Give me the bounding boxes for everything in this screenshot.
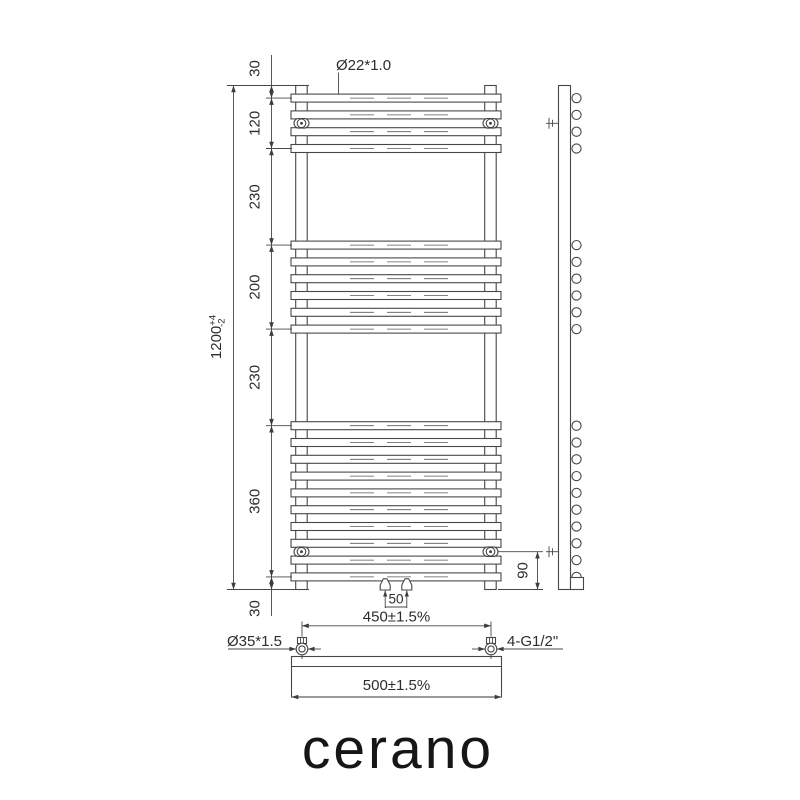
bracket-bolt-center (300, 122, 303, 125)
side-bar-end (572, 539, 581, 548)
towel-bars (291, 94, 501, 581)
side-bar-end (572, 241, 581, 250)
arrowhead (269, 419, 274, 426)
side-bar-end (572, 472, 581, 481)
side-bar-end (572, 438, 581, 447)
arrowhead (231, 86, 236, 93)
arrowhead (289, 647, 296, 652)
side-bar-end (572, 308, 581, 317)
arrowhead (269, 238, 274, 245)
side-bar-end (572, 488, 581, 497)
arrowhead (269, 322, 274, 329)
fitting-cap (298, 638, 307, 644)
chain-dimension-label: 120 (247, 111, 264, 136)
arrowhead (269, 245, 274, 252)
side-riser-tube (559, 86, 571, 590)
arrowhead (269, 86, 274, 93)
arrowhead (535, 583, 540, 590)
bracket-bolt-center (489, 122, 492, 125)
front-view (291, 86, 501, 591)
arrowhead (269, 577, 274, 584)
pipe-fittings (296, 638, 497, 660)
arrowhead (478, 647, 485, 652)
chain-dimension-label: 30 (247, 60, 264, 77)
tube-callout: Ø22*1.0 (336, 57, 391, 95)
tube-diameter-label: Ø22*1.0 (336, 57, 391, 74)
axis-spacing-label: 450±1.5% (363, 609, 430, 626)
side-bar-end (572, 257, 581, 266)
valve-spacing-label: 50 (388, 592, 403, 607)
thread-label: 4-G1/2" (507, 633, 558, 650)
side-bar-end (572, 556, 581, 565)
side-bar-end (572, 505, 581, 514)
total-height-label: 1200+4-2 (208, 315, 228, 359)
chain-dimension-label: 230 (247, 365, 264, 390)
side-bar-end (572, 522, 581, 531)
arrowhead (302, 624, 309, 629)
side-bar-end (572, 291, 581, 300)
side-bar-end (572, 455, 581, 464)
side-bar-end (572, 127, 581, 136)
arrowhead (269, 426, 274, 433)
brand-logo: cerano (302, 717, 494, 781)
arrowhead (269, 91, 274, 98)
side-view (546, 86, 584, 590)
chain-dimension-label: 200 (247, 275, 264, 300)
chain-dimension-label: 30 (247, 600, 264, 617)
height-dimensions: 1200+4-2 3012023020023036030 (208, 55, 310, 617)
arrowhead (269, 329, 274, 336)
bottom-view: 450±1.5% 500±1.5% Ø35*1.5 4-G1/2" (227, 609, 563, 700)
side-bar-end (572, 94, 581, 103)
arrowhead (231, 583, 236, 590)
side-bar-end (572, 325, 581, 334)
chain-dimension-marks: 3012023020023036030 (247, 60, 293, 617)
drawing-page: 1200+4-2 3012023020023036030 Ø22*1.0 90 … (0, 0, 800, 800)
arrowhead (269, 583, 274, 590)
fitting-cap (487, 638, 496, 644)
side-collector-end (571, 578, 584, 590)
chain-dimension-label: 360 (247, 489, 264, 514)
arrowhead (535, 552, 540, 559)
arrowhead (269, 570, 274, 577)
arrowhead (497, 647, 504, 652)
side-bar-ends (572, 94, 581, 582)
bracket-bolt-center (489, 550, 492, 553)
wall-brackets (546, 118, 559, 557)
side-bar-end (572, 274, 581, 283)
chain-dimension-label: 230 (247, 184, 264, 209)
overall-width-label: 500±1.5% (363, 677, 430, 694)
bracket-bolt-center (300, 550, 303, 553)
arrowhead (269, 142, 274, 149)
side-bar-end (572, 144, 581, 153)
arrowhead (383, 591, 387, 597)
arrowhead (308, 647, 315, 652)
arrowhead (269, 98, 274, 105)
side-bar-end (572, 110, 581, 119)
pipe-fitting-bore (488, 646, 494, 652)
collector-tube-label: Ø35*1.5 (227, 633, 282, 650)
arrowhead (484, 624, 491, 629)
bracket-height-dimension: 90 (498, 552, 543, 590)
arrowhead (269, 149, 274, 156)
pipe-fitting-bore (299, 646, 305, 652)
bracket-height-label: 90 (515, 562, 532, 579)
technical-drawing: 1200+4-2 3012023020023036030 Ø22*1.0 90 … (0, 0, 800, 800)
valve-spacing-dimension: 50 (383, 591, 409, 609)
arrowhead (405, 591, 409, 597)
side-bar-end (572, 421, 581, 430)
